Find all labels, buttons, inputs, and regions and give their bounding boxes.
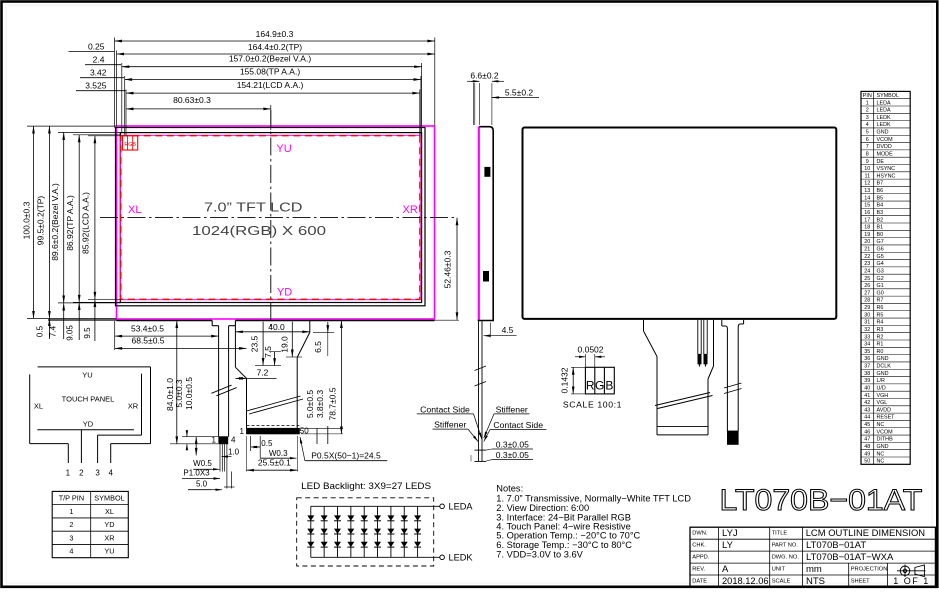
svg-text:B2: B2	[877, 217, 884, 223]
svg-text:25.5±0.1: 25.5±0.1	[258, 458, 291, 468]
svg-text:R1: R1	[877, 342, 884, 348]
svg-text:47: 47	[864, 437, 870, 443]
svg-text:R0: R0	[877, 349, 884, 355]
svg-text:PART NO.: PART NO.	[772, 543, 799, 549]
svg-text:10.0±0.5: 10.0±0.5	[184, 377, 194, 410]
svg-text:7.4: 7.4	[48, 325, 57, 337]
svg-text:157.0±0.2(Bezel V.A.): 157.0±0.2(Bezel V.A.)	[229, 54, 311, 64]
svg-text:LY: LY	[722, 540, 734, 551]
svg-text:86.92(TP A.A.): 86.92(TP A.A.)	[65, 195, 75, 251]
svg-text:B4: B4	[877, 203, 884, 209]
svg-text:164.9±0.3: 164.9±0.3	[256, 29, 294, 39]
svg-text:24: 24	[864, 268, 870, 274]
svg-text:LED Backlight: 3X9=27 LEDS: LED Backlight: 3X9=27 LEDS	[301, 481, 431, 491]
svg-text:LT070B−01AT−WXA: LT070B−01AT−WXA	[806, 552, 894, 563]
svg-text:3: 3	[69, 533, 73, 542]
svg-text:NTS: NTS	[806, 576, 825, 587]
svg-text:4: 4	[108, 469, 113, 478]
svg-text:5.0±0.3: 5.0±0.3	[174, 379, 184, 408]
svg-text:27: 27	[864, 290, 870, 296]
svg-text:68.5±0.5: 68.5±0.5	[131, 336, 164, 346]
svg-text:42: 42	[864, 400, 870, 406]
svg-text:YU: YU	[104, 547, 114, 556]
svg-text:T/P PIN: T/P PIN	[59, 494, 84, 503]
svg-text:XL: XL	[105, 507, 114, 516]
svg-text:5.0: 5.0	[196, 480, 208, 489]
svg-text:DVDD: DVDD	[877, 144, 892, 150]
svg-text:0.3±0.05: 0.3±0.05	[496, 439, 529, 449]
svg-text:B1: B1	[877, 225, 884, 231]
svg-text:6: 6	[866, 137, 869, 143]
svg-text:7.2: 7.2	[257, 368, 269, 378]
svg-text:XL: XL	[128, 204, 141, 216]
svg-text:G4: G4	[877, 261, 884, 267]
svg-text:G6: G6	[877, 247, 884, 253]
svg-text:LT070B−01AT: LT070B−01AT	[720, 484, 923, 517]
svg-text:1: 1	[866, 100, 869, 106]
svg-text:12: 12	[864, 181, 870, 187]
svg-text:GND: GND	[877, 130, 889, 136]
svg-text:0.5: 0.5	[261, 439, 273, 448]
svg-text:2. View Direction: 6:00: 2. View Direction: 6:00	[496, 503, 589, 513]
svg-text:SHEET: SHEET	[851, 578, 870, 584]
svg-text:19.0: 19.0	[279, 336, 289, 353]
svg-text:DITHB: DITHB	[877, 437, 894, 443]
svg-text:3: 3	[866, 115, 869, 121]
svg-text:164.4±0.2(TP): 164.4±0.2(TP)	[248, 42, 302, 52]
svg-text:25: 25	[864, 276, 870, 282]
svg-text:TOUCH PANEL: TOUCH PANEL	[62, 394, 115, 403]
svg-text:78.7±0.5: 78.7±0.5	[327, 387, 337, 420]
svg-text:XR: XR	[403, 204, 418, 216]
svg-text:VSYNC: VSYNC	[877, 166, 896, 172]
svg-text:2: 2	[69, 520, 73, 529]
svg-text:NC: NC	[877, 459, 885, 465]
svg-text:P0.5X(50−1)=24.5: P0.5X(50−1)=24.5	[311, 450, 381, 460]
svg-text:5. Operation Temp.: −20°C to 7: 5. Operation Temp.: −20°C to 70°C	[496, 531, 640, 541]
svg-text:XL: XL	[34, 401, 43, 410]
svg-text:R6: R6	[877, 305, 884, 311]
svg-text:0.25: 0.25	[88, 42, 105, 52]
svg-text:41: 41	[864, 393, 870, 399]
svg-text:2: 2	[866, 108, 869, 114]
svg-text:G3: G3	[877, 268, 884, 274]
svg-text:Notes:: Notes:	[496, 484, 523, 494]
svg-text:89.6±0.2(Bezel V.A.): 89.6±0.2(Bezel V.A.)	[50, 183, 60, 261]
svg-text:29: 29	[864, 305, 870, 311]
svg-text:52.46±0.3: 52.46±0.3	[443, 250, 453, 288]
svg-text:RGB: RGB	[124, 142, 136, 148]
svg-text:45: 45	[864, 422, 870, 428]
svg-text:CHK.: CHK.	[692, 543, 706, 549]
svg-text:DWG. NO.: DWG. NO.	[772, 555, 800, 561]
svg-text:1: 1	[69, 507, 73, 516]
svg-text:Contact Side: Contact Side	[493, 420, 543, 430]
svg-text:VGL: VGL	[877, 400, 888, 406]
svg-text:40.0: 40.0	[268, 322, 285, 332]
svg-text:LEDK: LEDK	[877, 115, 891, 121]
svg-text:SYMBOL: SYMBOL	[94, 494, 124, 503]
svg-text:LEDA: LEDA	[449, 502, 474, 512]
svg-text:37: 37	[864, 364, 870, 370]
svg-text:HSYNC: HSYNC	[877, 173, 896, 179]
svg-text:YD: YD	[104, 520, 114, 529]
svg-text:23: 23	[864, 261, 870, 267]
svg-text:6.6±0.2: 6.6±0.2	[470, 70, 499, 80]
svg-text:7: 7	[866, 144, 869, 150]
svg-text:DATE: DATE	[692, 578, 707, 584]
svg-text:19: 19	[864, 232, 870, 238]
svg-text:SCALE 100:1: SCALE 100:1	[563, 400, 622, 410]
svg-text:155.08(TP A.A.): 155.08(TP A.A.)	[240, 67, 300, 77]
svg-text:3.525: 3.525	[85, 81, 107, 91]
svg-text:PIN: PIN	[863, 93, 872, 99]
svg-text:2: 2	[79, 469, 84, 478]
svg-text:26: 26	[864, 283, 870, 289]
svg-text:15: 15	[864, 203, 870, 209]
svg-text:21: 21	[864, 247, 870, 253]
svg-text:154.21(LCD A.A.): 154.21(LCD A.A.)	[237, 80, 304, 90]
svg-text:LCM OUTLINE DIMENSION: LCM OUTLINE DIMENSION	[806, 528, 926, 539]
svg-text:35: 35	[864, 349, 870, 355]
svg-text:VGH: VGH	[877, 393, 889, 399]
svg-text:G: G	[595, 379, 604, 393]
svg-text:mm: mm	[806, 564, 822, 575]
svg-text:6.5: 6.5	[313, 341, 323, 353]
svg-text:G1: G1	[877, 283, 884, 289]
svg-text:B0: B0	[877, 232, 884, 238]
svg-text:9: 9	[866, 159, 869, 165]
svg-text:1 OF 1: 1 OF 1	[893, 576, 930, 586]
svg-text:UNIT: UNIT	[772, 567, 786, 573]
svg-text:18: 18	[864, 225, 870, 231]
svg-text:31: 31	[864, 320, 870, 326]
svg-text:LEDK: LEDK	[449, 553, 474, 563]
svg-text:1: 1	[240, 427, 245, 436]
svg-text:Stiffener: Stiffener	[496, 405, 528, 415]
svg-text:43: 43	[864, 407, 870, 413]
svg-text:Contact Side: Contact Side	[420, 405, 470, 415]
svg-text:B: B	[605, 379, 613, 393]
svg-text:TITLE: TITLE	[772, 531, 788, 537]
svg-text:5.0±0.5: 5.0±0.5	[305, 390, 315, 419]
svg-text:B6: B6	[877, 188, 884, 194]
svg-text:28: 28	[864, 298, 870, 304]
svg-text:G2: G2	[877, 276, 884, 282]
svg-text:40: 40	[864, 385, 870, 391]
svg-text:33: 33	[864, 334, 870, 340]
svg-text:DCLK: DCLK	[877, 364, 892, 370]
svg-text:LYJ: LYJ	[722, 528, 738, 539]
svg-text:16: 16	[864, 210, 870, 216]
svg-text:0.5: 0.5	[35, 325, 44, 337]
svg-text:XR: XR	[128, 401, 139, 410]
svg-text:0.0502: 0.0502	[578, 344, 604, 354]
svg-text:NC: NC	[877, 451, 885, 457]
svg-text:4.5: 4.5	[502, 325, 514, 335]
svg-text:NC: NC	[877, 422, 885, 428]
svg-text:XR: XR	[104, 533, 114, 542]
svg-text:46: 46	[864, 429, 870, 435]
svg-text:A: A	[722, 564, 729, 575]
svg-text:DWN.: DWN.	[692, 531, 708, 537]
svg-text:8: 8	[866, 151, 869, 157]
svg-text:LEDK: LEDK	[877, 122, 891, 128]
svg-text:53.4±0.5: 53.4±0.5	[131, 323, 164, 333]
svg-text:100.0±0.3: 100.0±0.3	[22, 201, 32, 239]
svg-text:99.5±0.2(TP): 99.5±0.2(TP)	[36, 196, 46, 246]
svg-text:2018.12.06: 2018.12.06	[722, 576, 769, 586]
svg-text:YD: YD	[83, 420, 94, 429]
svg-text:20: 20	[864, 239, 870, 245]
svg-text:VCOM: VCOM	[877, 429, 894, 435]
svg-text:17: 17	[864, 217, 870, 223]
svg-text:R: R	[586, 379, 595, 393]
svg-text:10: 10	[864, 166, 870, 172]
svg-text:G5: G5	[877, 254, 884, 260]
svg-text:P1.0X3: P1.0X3	[183, 469, 210, 478]
svg-text:7.0” TFT LCD: 7.0” TFT LCD	[204, 200, 303, 215]
svg-text:RESET: RESET	[877, 415, 896, 421]
svg-text:39: 39	[864, 378, 870, 384]
svg-text:DE: DE	[877, 159, 885, 165]
svg-text:R4: R4	[877, 320, 884, 326]
svg-text:5: 5	[866, 130, 869, 136]
svg-text:50: 50	[864, 459, 870, 465]
svg-text:3.8±0.3: 3.8±0.3	[315, 390, 325, 419]
svg-text:3.42: 3.42	[90, 68, 107, 78]
svg-text:34: 34	[864, 342, 870, 348]
svg-text:11: 11	[864, 173, 870, 179]
svg-text:80.63±0.3: 80.63±0.3	[173, 95, 211, 105]
svg-text:U/D: U/D	[877, 385, 886, 391]
svg-text:B3: B3	[877, 210, 884, 216]
svg-text:APPD.: APPD.	[692, 555, 709, 561]
svg-text:B5: B5	[877, 195, 884, 201]
svg-text:R2: R2	[877, 334, 884, 340]
svg-text:R3: R3	[877, 327, 884, 333]
svg-text:23.5: 23.5	[250, 335, 260, 352]
svg-text:LT070B−01AT: LT070B−01AT	[806, 540, 866, 551]
svg-text:SYMBOL: SYMBOL	[877, 93, 899, 99]
svg-text:1: 1	[66, 469, 71, 478]
svg-text:GND: GND	[877, 356, 889, 362]
svg-text:YU: YU	[276, 143, 291, 155]
svg-text:LEDA: LEDA	[877, 100, 891, 106]
svg-text:7. VDD=3.0V to 3.6V: 7. VDD=3.0V to 3.6V	[496, 550, 583, 560]
svg-text:4: 4	[231, 436, 236, 445]
svg-text:VCOM: VCOM	[877, 137, 894, 143]
svg-text:MODE: MODE	[877, 151, 894, 157]
svg-text:LEDA: LEDA	[877, 108, 891, 114]
svg-text:0.3±0.05: 0.3±0.05	[496, 450, 529, 460]
svg-text:32: 32	[864, 327, 870, 333]
svg-text:R5: R5	[877, 312, 884, 318]
svg-text:W0.5: W0.5	[193, 459, 212, 468]
svg-text:SCALE: SCALE	[772, 578, 791, 584]
svg-text:48: 48	[864, 444, 870, 450]
svg-text:13: 13	[864, 188, 870, 194]
svg-text:30: 30	[864, 312, 870, 318]
svg-text:22: 22	[864, 254, 870, 260]
svg-text:PROJECTION: PROJECTION	[851, 567, 888, 573]
svg-text:B7: B7	[877, 181, 884, 187]
svg-text:4: 4	[866, 122, 869, 128]
svg-text:L/R: L/R	[877, 378, 885, 384]
svg-text:GND: GND	[877, 371, 889, 377]
svg-text:9.5: 9.5	[83, 327, 92, 339]
svg-text:GND: GND	[877, 444, 889, 450]
svg-text:1.0: 1.0	[228, 448, 240, 457]
svg-text:36: 36	[864, 356, 870, 362]
svg-text:38: 38	[864, 371, 870, 377]
svg-text:Stiffener: Stiffener	[434, 420, 466, 430]
svg-text:44: 44	[864, 415, 870, 421]
svg-text:YU: YU	[82, 370, 92, 379]
svg-text:49: 49	[864, 451, 870, 457]
svg-text:1024(RGB) X 600: 1024(RGB) X 600	[192, 223, 326, 238]
svg-text:14: 14	[864, 195, 870, 201]
svg-text:REV.: REV.	[692, 567, 705, 573]
svg-text:5.5±0.2: 5.5±0.2	[505, 88, 534, 98]
svg-text:G7: G7	[877, 239, 884, 245]
svg-text:85.92(LCD A.A.): 85.92(LCD A.A.)	[81, 192, 91, 254]
svg-text:AVDD: AVDD	[877, 407, 892, 413]
svg-text:0.1432: 0.1432	[560, 367, 570, 393]
svg-text:4: 4	[69, 547, 73, 556]
svg-text:YD: YD	[277, 287, 292, 299]
svg-text:G0: G0	[877, 290, 884, 296]
svg-text:2.4: 2.4	[93, 55, 105, 65]
svg-text:R7: R7	[877, 298, 884, 304]
svg-text:9.05: 9.05	[66, 325, 75, 341]
svg-text:3: 3	[95, 469, 100, 478]
